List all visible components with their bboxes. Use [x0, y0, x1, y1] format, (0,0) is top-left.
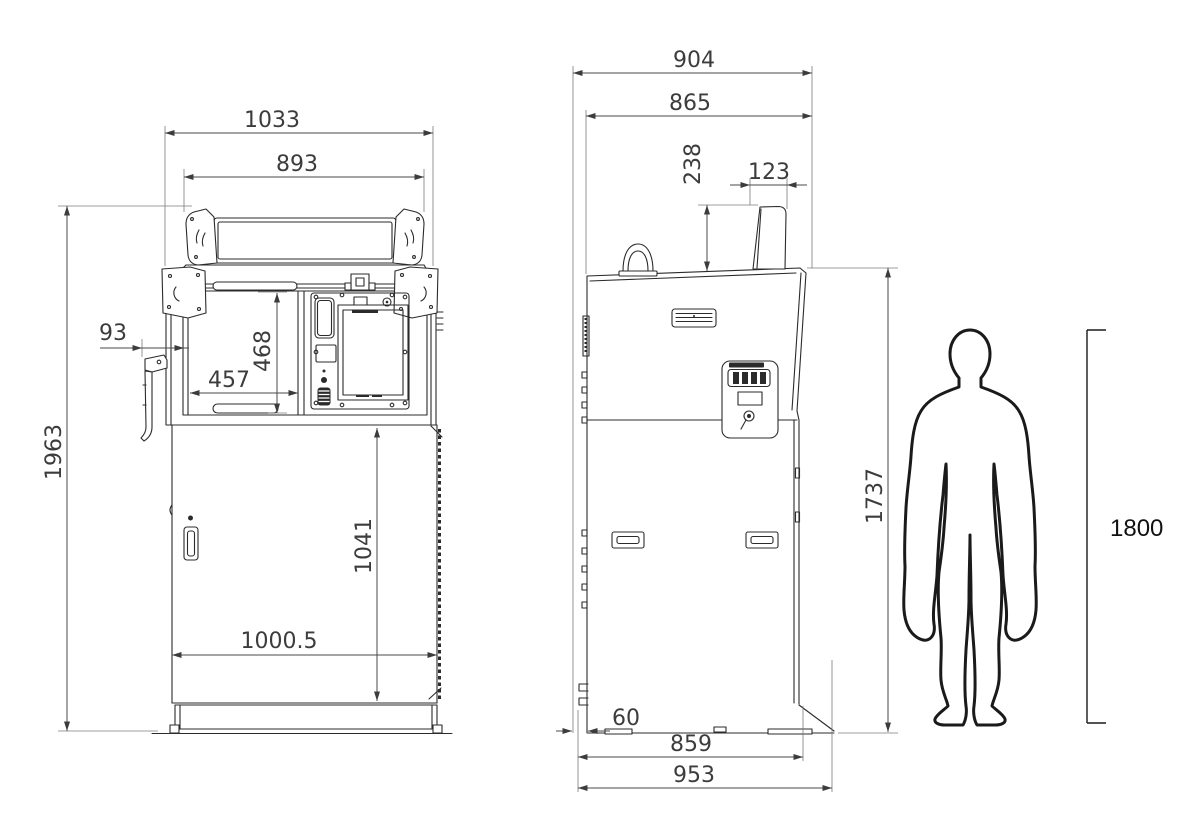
dim-overall-width: 1033 — [165, 108, 433, 133]
dim-door-width: 1000.5 — [172, 629, 437, 655]
dim-label-header-width: 893 — [276, 152, 318, 177]
side-hook-bracket — [141, 355, 167, 441]
dim-overall-base-depth: 953 — [578, 763, 832, 788]
dim-label-door-height: 1041 — [352, 518, 377, 574]
display-screen[interactable] — [338, 305, 408, 400]
dim-label-rear-post-depth: 123 — [748, 160, 790, 185]
control-panel — [311, 293, 409, 409]
marquee-sign-panel — [214, 218, 396, 263]
dim-label-overall-height: 1963 — [42, 424, 67, 480]
speaker-grille — [318, 388, 331, 406]
corner-plate-left — [162, 267, 206, 318]
dim-label-console-opening-height: 468 — [251, 330, 276, 372]
dim-label-human-height: 1800 — [1110, 515, 1163, 542]
dim-side-hook-offset: 93 — [99, 321, 189, 348]
dim-label-body-height: 1737 — [863, 468, 888, 524]
human-silhouette — [904, 330, 1037, 725]
door-handle[interactable] — [184, 527, 198, 560]
card-reader-unit[interactable] — [722, 361, 778, 438]
dim-label-overall-base-depth: 953 — [673, 763, 715, 788]
top-clamp — [345, 274, 375, 290]
rear-post — [753, 207, 786, 270]
dim-label-side-hook-offset: 93 — [99, 321, 127, 346]
dim-header-width: 893 — [184, 152, 424, 177]
side-view — [579, 207, 834, 735]
indicator-dot — [323, 370, 326, 373]
dim-door-height: 1041 — [352, 428, 377, 701]
dim-base-depth: 859 — [578, 732, 803, 757]
dim-label-base-depth: 859 — [670, 732, 712, 757]
dim-rear-post-depth: 123 — [730, 160, 807, 185]
base-plinth — [152, 703, 452, 734]
dim-rear-post-height: 238 — [681, 143, 707, 271]
beacon-light — [619, 244, 657, 276]
dim-label-rear-base-inset: 60 — [612, 706, 640, 731]
dim-label-overall-depth: 904 — [673, 48, 715, 73]
marquee-right-bracket — [393, 209, 424, 265]
side-handle-slots — [612, 532, 778, 548]
dim-label-rear-post-height: 238 — [681, 143, 706, 185]
dim-label-overall-width: 1033 — [244, 108, 300, 133]
door-lock[interactable] — [188, 516, 193, 521]
side-outline — [587, 268, 834, 734]
top-slot — [213, 282, 297, 290]
dim-console-opening-width: 457 — [190, 368, 298, 393]
dim-overall-height: 1963 — [42, 206, 67, 731]
vent-grille — [672, 309, 716, 327]
dim-human-height: 1800 — [1087, 330, 1163, 723]
bottom-slot — [213, 404, 278, 413]
button[interactable] — [321, 377, 327, 383]
dimensional-drawing-canvas: 1033 893 1963 93 457 468 1041 — [0, 0, 1200, 840]
camera-window — [354, 297, 367, 305]
dim-rear-base-inset: 60 — [556, 706, 640, 731]
dim-label-door-width: 1000.5 — [241, 629, 318, 654]
cabinet-door[interactable] — [170, 425, 442, 703]
dim-label-upper-body-depth: 865 — [669, 91, 711, 116]
dim-body-height: 1737 — [863, 268, 888, 732]
front-dimensions: 1033 893 1963 93 457 468 1041 — [42, 108, 437, 731]
marquee-left-bracket — [186, 209, 217, 265]
small-port — [316, 345, 336, 362]
human-figure: 1800 — [904, 330, 1164, 725]
dim-overall-depth: 904 — [573, 48, 812, 73]
dim-console-opening-height: 468 — [251, 293, 277, 413]
dim-upper-body-depth: 865 — [586, 91, 812, 116]
dim-label-console-opening-width: 457 — [208, 368, 250, 393]
